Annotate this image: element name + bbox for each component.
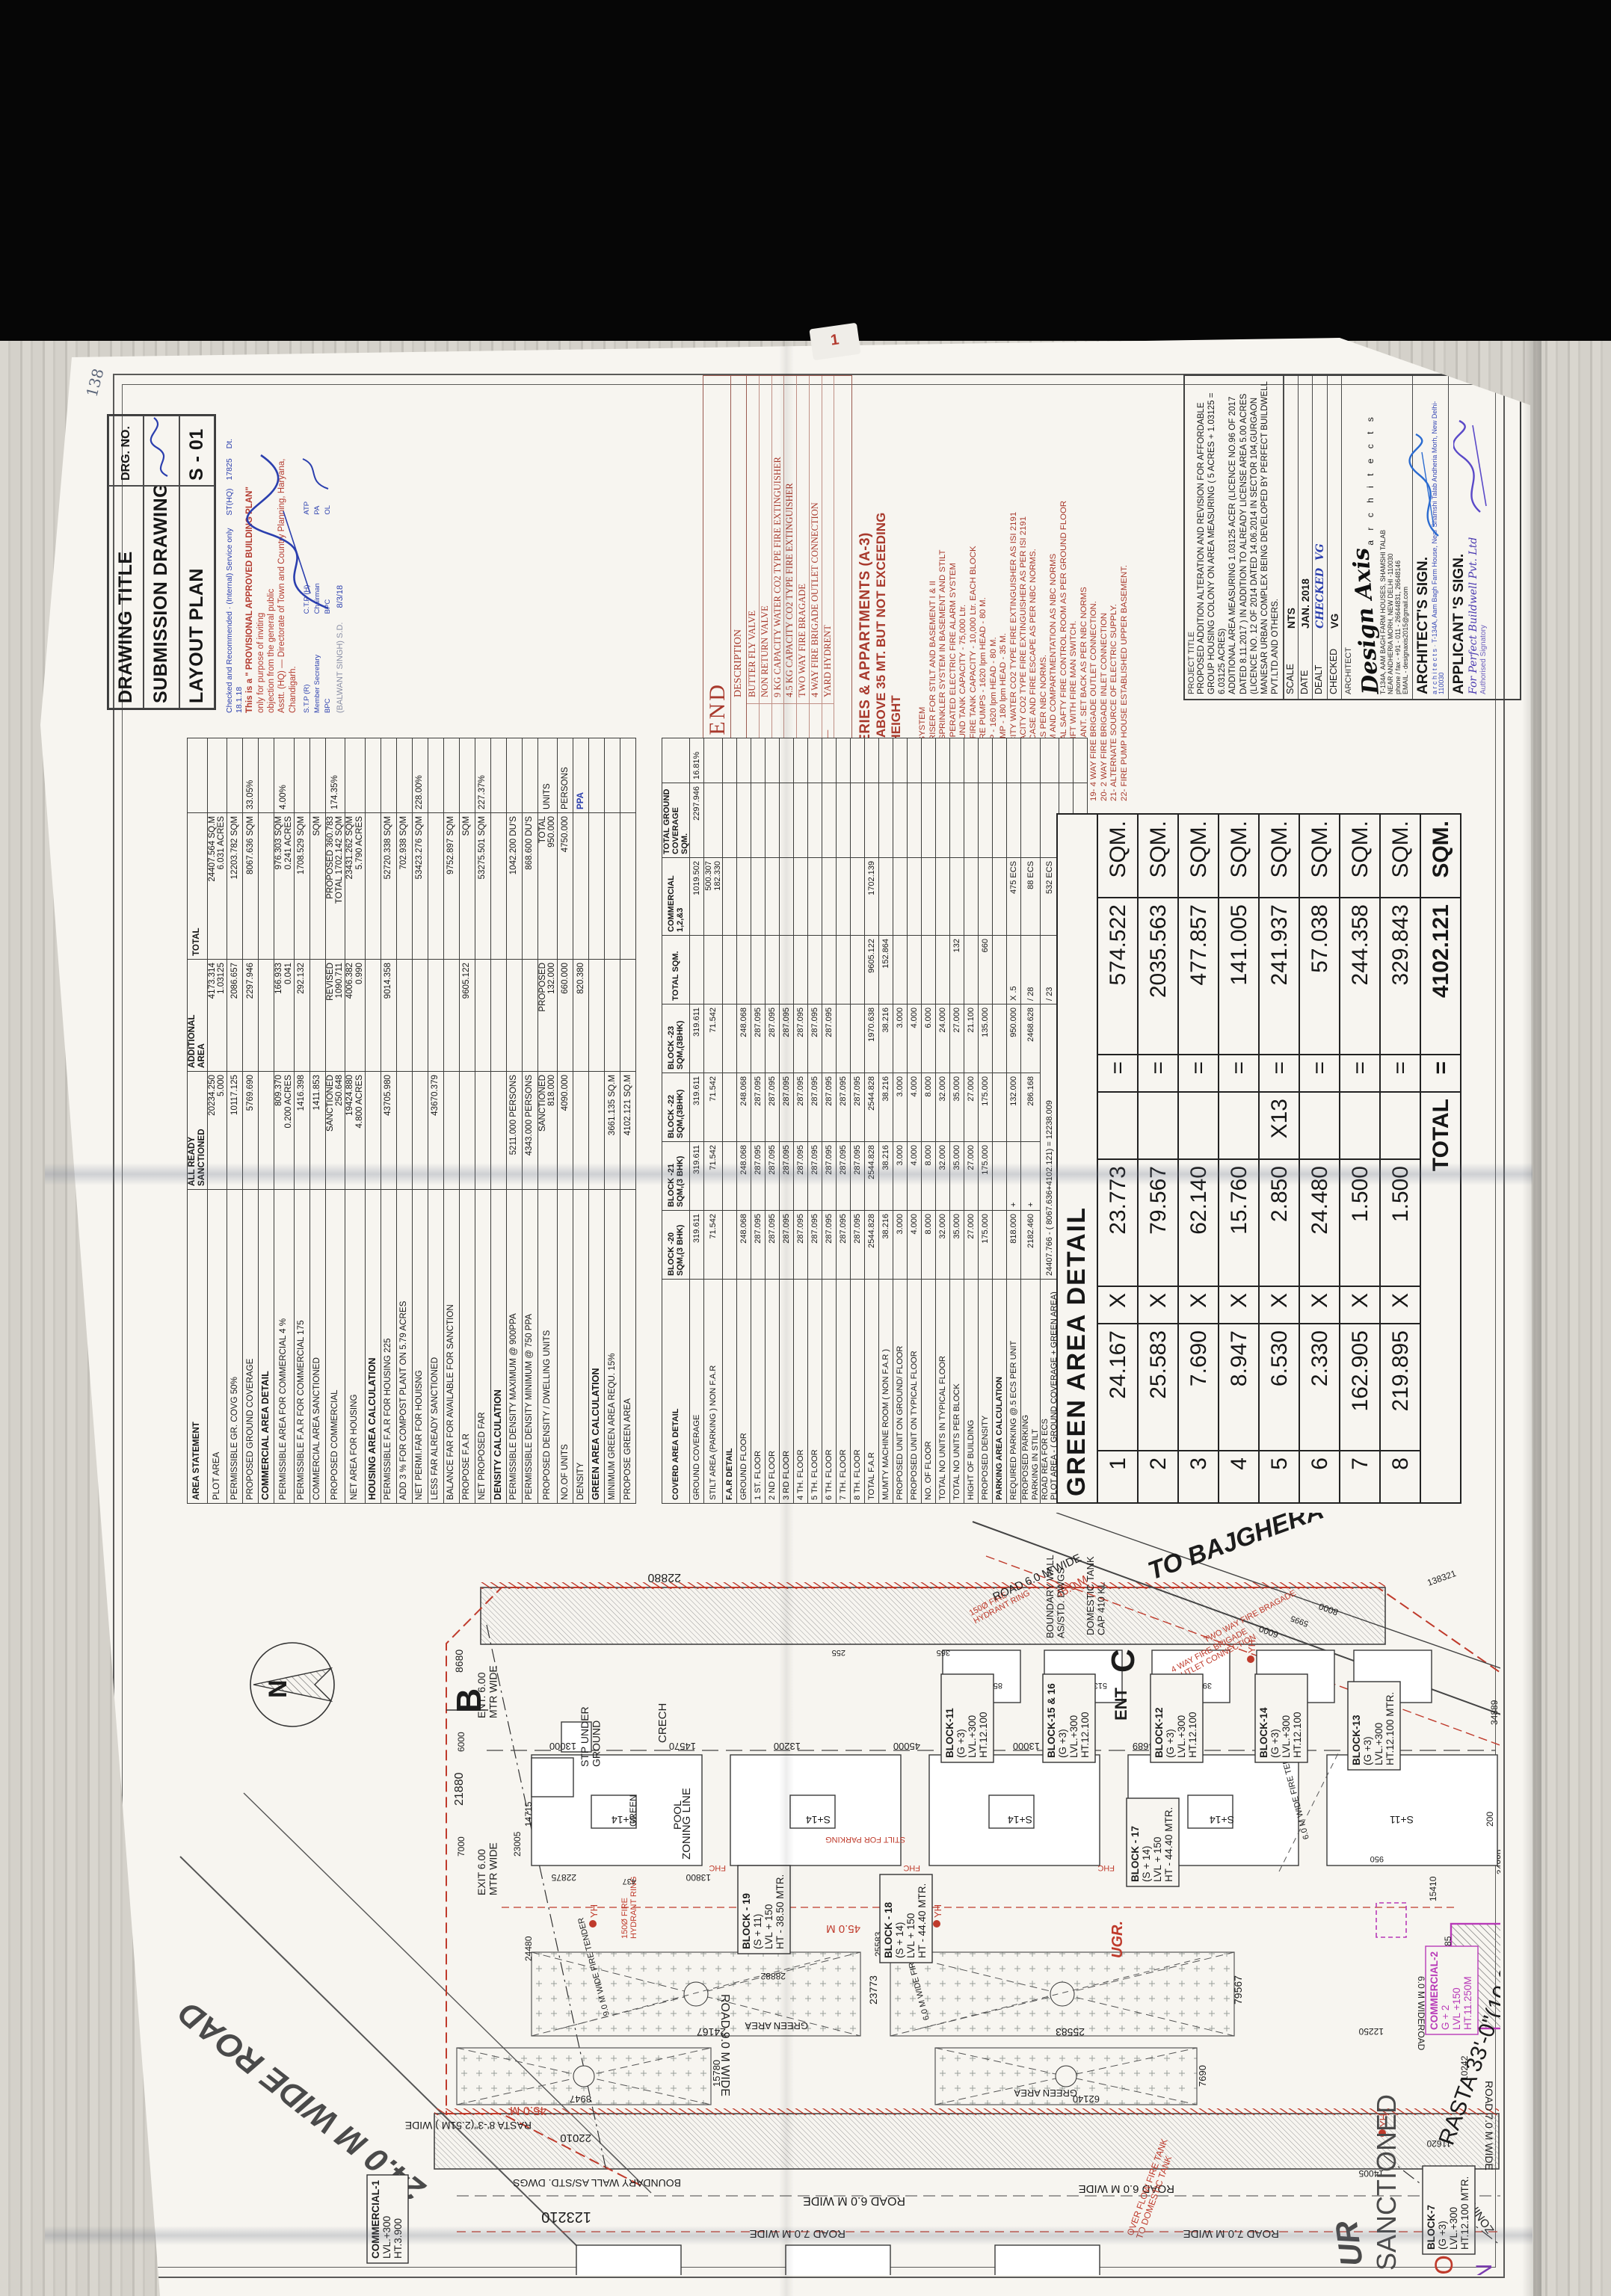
table-row: 3 RD FLOOR287.095287.095287.095287.095 (780, 738, 794, 1504)
notes-heading-3: 45 MT. IN HEIGHT (889, 371, 904, 801)
block-label-line: (G +3) (1165, 1729, 1176, 1758)
plan-label: 22875 (551, 1872, 576, 1883)
legend-description: 9 KG CAPACITY WATER CO2 TYPE FIRE EXTING… (772, 376, 784, 703)
block-label-line: LVL.+300 (967, 1715, 978, 1758)
stamp-checked-note: Checked and Recommended · (Internal) Ser… (225, 417, 244, 713)
green-areas (457, 1952, 1234, 2105)
plan-label: CRECH (656, 1703, 669, 1743)
plan-label: 200 (1485, 1812, 1495, 1827)
plan-label: POOL (671, 1800, 683, 1830)
block-label-line: LVL + 150 (763, 1904, 774, 1949)
note-item: 8- ELECTRIC FIRE PUMPS - 1620 lpm HEAD -… (979, 371, 988, 801)
block-label-line: (G +3) (1269, 1729, 1281, 1758)
plan-label: 45000 (893, 1741, 920, 1752)
plan-label: 79567 (1232, 1975, 1244, 2005)
checked-value: VG (1327, 376, 1341, 633)
note-item: 6- UNDER GROUND TANK CAPACITY - 75,000 L… (958, 371, 968, 801)
stamp-date2: 8/3/18 (336, 585, 345, 608)
table-row: COMMERCIAL AREA SANCTIONED1411.853SQM (309, 738, 325, 1504)
legend-header: SYMBOLS DESCRIPTION (731, 376, 747, 793)
fire-safety-notes: DORMITERIES & APPARTMENTS (A-3) (PART-3)… (857, 371, 1139, 801)
plan-label: 21880 (453, 1772, 466, 1806)
block-label-line: BLOCK-11 (944, 1708, 955, 1758)
checked-label: CHECKED (1327, 633, 1341, 699)
plan-label: CAP 410 KL (1095, 1582, 1106, 1635)
table-row: GROUND FLOOR248.068248.068248.068248.068 (737, 738, 751, 1504)
block-label-box: BLOCK-7(G +3)LVL.+300HT.12.100 MTR. (1423, 2166, 1475, 2254)
stamp-line1: This is a " PROVISIONAL APPROVED BUILDIN… (244, 417, 255, 713)
table-row: LESS FAR ALREADY SANCTIONED43670.379 (428, 738, 443, 1504)
plan-label: 14570 (669, 1741, 696, 1752)
legend-description: TWO WAY FIRE BRAGADE (797, 376, 809, 703)
corner-sticker: 1 (809, 323, 860, 360)
stamp-official: PA (313, 417, 322, 515)
table-row: HIGHT OF BUILDING27.00027.00027.00021.10… (964, 738, 979, 1504)
stamp-official: C.T.P (H) (303, 516, 312, 614)
table-row: COVERD AREA DETAILBLOCK -20 SQM,(3 BHK)B… (662, 738, 690, 1504)
note-item: 21- ALTERNATE SOURCE OF ELECTRIC SUPPLY. (1109, 371, 1119, 801)
table-row: 2 ND FLOOR287.095287.095287.095287.095 (766, 738, 780, 1504)
block-label-line: HT.3.900 (392, 2218, 404, 2259)
note-item: 7- OVER HEAD FIRE TANK CAPACITY - 10,000… (969, 371, 979, 801)
plan-label: FHC (903, 1863, 920, 1872)
note-item: 16- STRUCTURAL SAFTY FIRE CONTROL ROOM A… (1059, 371, 1069, 801)
note-item: 18- YARD HYDRANT. SET BACK AS PER NBC NO… (1079, 371, 1089, 801)
scanned-drawing-sheet: DRAWING TITLE DRG. NO. SUBMISSION DRAWIN… (0, 0, 1611, 2296)
plan-label: GREEN AREA (745, 2020, 808, 2031)
legend-description: YARD HYDRENT (822, 376, 834, 703)
plan-label: 123210 (541, 2209, 591, 2225)
plan-label: STP UNDER (579, 1706, 591, 1767)
block-label-box: BLOCK-12(G +3)LVL.+300HT.12.100 (1151, 1674, 1203, 1762)
block-label-line: BLOCK - 19 (741, 1893, 752, 1949)
plan-label: AS/STD. DWGS (1055, 1567, 1066, 1638)
table-row: 56.530X2.850X13=241.937SQM. (1259, 814, 1299, 1503)
block-label-line: LVL + 150 (1152, 1837, 1163, 1882)
legend-description: NON RETURN VALVE (760, 376, 771, 703)
table-row: HOUSING AREA CALCULATION (365, 738, 381, 1504)
plan-label: 6.0 M WIDEROAD (1416, 1976, 1426, 2051)
drawing-title-row1: SUBMISSION DRAWING (144, 486, 179, 709)
plan-label: SANCTIONED (1371, 2094, 1402, 2271)
plan-label: S+14 (806, 1814, 831, 1826)
table-row: 4 TH. FLOOR287.095287.095287.095287.095 (794, 738, 808, 1504)
stamp-line2: only for purpose of inviting (256, 417, 266, 713)
table-row: TOTAL F.A.R2544.8282544.8282544.8281970.… (865, 738, 879, 1504)
plan-label: GREEN AREA (1014, 2087, 1077, 2099)
block-label-line: BLOCK-7 (1426, 2205, 1437, 2250)
plan-label: 24480 (523, 1936, 534, 1961)
block-label-line: (G +3) (1437, 2221, 1448, 2250)
block-label-line: HT.12.100 (1187, 1712, 1198, 1758)
area-statement-table: AREA STATEMENTALL READY SANCTIONEDADDITI… (187, 738, 636, 1504)
plan-label: S+11 (1390, 1814, 1414, 1826)
dealt-label: DEALT (1312, 633, 1327, 699)
applicant-for: For Perfect Buildwell Pvt. Ltd (1467, 380, 1479, 694)
table-row: STILT AREA (PARKING ) NON F.A.R71.54271.… (704, 738, 723, 1504)
green-area-detail-table: GREEN AREA DETAIL124.167X23.773=574.522S… (1056, 813, 1461, 1504)
block-label-box: COMMERCIAL-1LVL.+300HT.3.900 (367, 2175, 408, 2263)
block-label-box: BLOCK-14(G +3)LVL.+300HT.12.100 (1255, 1674, 1307, 1762)
block-label-line: HT.12.100 MTR. (1459, 2176, 1470, 2250)
drg-no-scribble-cell (144, 416, 179, 486)
plan-label: 34889 (1489, 1700, 1500, 1725)
plan-label: 28882 (760, 1971, 786, 1981)
block-label-box: BLOCK - 17(S + 14)LVL + 150HT - 44.40 MT… (1127, 1798, 1179, 1886)
note-item: 19- 4 WAY FIRE BRIGADE OUTLET CONNECTION… (1089, 371, 1099, 801)
table-row: PERMISSIBLE DENSITY MINIMUM @ 750 PPA434… (522, 738, 537, 1504)
plan-label: N (264, 1679, 292, 1698)
block-label-box: BLOCK - 19(S + 11)LVL + 150HT - 38.50 MT… (738, 1865, 790, 1954)
plan-label: BOUNDARY WALL (1044, 1555, 1056, 1638)
block-label-line: HT.12.100 (1292, 1712, 1303, 1758)
note-item: 20- 2 WAY FIRE BRIGADE INLET CONNECTION (1100, 371, 1109, 801)
plan-label: 255 (832, 1648, 845, 1657)
note-item: 11- 9 KG CAPACITY WATER CO2 TYPE FIRE EX… (1009, 371, 1019, 801)
plan-label: 13000 (1013, 1741, 1040, 1752)
approval-stamp: Checked and Recommended · (Internal) Ser… (225, 417, 388, 713)
drg-no-value: S - 01 (179, 416, 215, 486)
table-row: 5 TH. FLOOR287.095287.095287.095287.095 (808, 738, 822, 1504)
stamp-official: BPC (324, 615, 333, 713)
project-title-label: PROJECT TITLE (1187, 380, 1196, 694)
legend-description: BUTTER FLY VALVE (747, 376, 759, 703)
plan-label: 950 (1370, 1854, 1384, 1863)
plan-label: ROAD 7.0 M WIDE (1483, 2081, 1495, 2170)
plan-label: 150Ø FIRE (620, 1898, 629, 1939)
block-label-line: LVL.+300 (1281, 1715, 1292, 1758)
plan-label: FHC (1097, 1863, 1115, 1872)
handwritten-scribble (145, 416, 178, 481)
table-row: BALANCE FAR FOR AVAILABLE FOR SANCTION97… (443, 738, 459, 1504)
block-label-box: BLOCK-11(G +3)LVL.+300HT.12.100 (941, 1674, 994, 1762)
green-area-1 (532, 1952, 860, 2036)
table-row: 225.583X79.567=2035.563SQM. (1138, 814, 1178, 1503)
plan-label: YH (588, 1904, 600, 1918)
table-row: NO. OF FLOOR8.0008.0008.0006.000 (922, 738, 936, 1504)
plan-label: 8680 (453, 1650, 465, 1673)
plan-label: ROAD 6.0 M WIDE (803, 2194, 905, 2207)
legend-row: △4.5 KG CAPACITY CO2 TYPE FIRE EXTINGUIS… (784, 376, 797, 793)
legend-col-description: DESCRIPTION (731, 376, 746, 703)
block-label-line: (S + 14) (894, 1922, 905, 1958)
plan-label: ROAD 7.0 M WIDE (1183, 2227, 1279, 2240)
plan-label: 24167 (697, 2026, 726, 2038)
applicant-sub: Authorised Signatory (1479, 380, 1488, 694)
block-label-line: HT - 44.40 MTR. (917, 1883, 928, 1958)
block-label-line: BLOCK-13 (1351, 1715, 1362, 1765)
block-label-line: G + 2 (1440, 2005, 1451, 2030)
ugr-structure (1376, 1903, 1406, 1937)
project-title-text: PROPOSED ADDITION ALTERATION AND REVISIO… (1196, 380, 1281, 694)
table-row: GROUND COVERAGE319.611319.611319.611319.… (690, 738, 704, 1504)
table-row: REQUIRED PARKING @.5 ECS PER UNIT818.000… (1007, 738, 1021, 1504)
plan-label: ENT (1112, 1687, 1130, 1721)
plan-label: 45.0 M (826, 1922, 860, 1935)
stamp-line3: objection from the general public (266, 417, 277, 713)
block-label-box: BLOCK-15 & 16(G +3)LVL.+300HT.12.100 (1043, 1674, 1095, 1762)
table-row: PROPOSED GROUND COVERAGE5769.6902297.946… (243, 738, 259, 1504)
stamp-official: OL (324, 417, 333, 515)
table-row: 124.167X23.773=574.522SQM. (1097, 814, 1138, 1503)
table-row: 48.947X15.760=141.005SQM. (1219, 814, 1259, 1503)
legend-title: LEGEND (703, 376, 731, 793)
legend-row: ◎9 KG CAPACITY WATER CO2 TYPE FIRE EXTIN… (772, 376, 785, 793)
plan-label: 6000 (456, 1732, 466, 1752)
stamp-office: Asstt. (HQ) — Directorate of Town and Co… (277, 417, 298, 713)
date-label: DATE (1298, 633, 1312, 699)
architect-sign-section: ARCHITECT'S SIGN. a r c h i t e c t s · … (1413, 376, 1450, 699)
plan-label: ROAD 7.0 M WIDE (750, 2227, 845, 2240)
table-row: DENSITY820.380PPA (573, 738, 589, 1504)
table-row: TOTAL NO UNITS PER BLOCK35.00035.00035.0… (950, 738, 964, 1504)
notes-heading-1: DORMITERIES & APPARTMENTS (A-3) (857, 371, 874, 801)
table-row: PROPOSED DENSITY175.000175.000175.000135… (979, 738, 993, 1504)
plan-label: S+14 (1008, 1814, 1032, 1826)
plan-label: 138321 (1426, 1568, 1458, 1588)
note-item: 10- JOCKEY PUMP - 180 lpm HEAD - 35 M. (999, 371, 1008, 801)
table-row: NET PERMI.FAR FOR HOUISNG53423.276 SQM22… (412, 738, 428, 1504)
block-label-line: LVL.+300 (381, 2216, 392, 2259)
stamp-official: Member Secretary (313, 615, 322, 713)
table-row: 8219.895X1.500=329.843SQM. (1380, 814, 1420, 1503)
legend-description: 4 WAY FIRE BRIGADE OUTLET CONNECTION (810, 376, 822, 703)
stamp-official: ATP (303, 417, 312, 515)
block-label-line: HT.12.100 (978, 1712, 989, 1758)
plan-label: ADDITION (1472, 2264, 1497, 2275)
legend-row: YH ○—YARD HYDRENT (822, 376, 835, 793)
legend-row: ⑂TWO WAY FIRE BRAGADE (797, 376, 810, 793)
note-item: 3- SPRINKLER RISER FOR STILT AND BASEMEN… (928, 371, 938, 801)
block-label-line: LVL.+300 (1176, 1715, 1187, 1758)
plan-label: 365 (937, 1648, 950, 1657)
plan-label: 13800 (686, 1872, 711, 1883)
plan-label: EXIT 6.00 (475, 1849, 487, 1895)
stamp-ref2: 17825 (225, 458, 234, 480)
note-item: 17- FIRE MEN LIFT WITH FIRE MAN SWITCH. (1069, 371, 1079, 801)
note-item: 1- HOSE REEL (908, 371, 918, 801)
note-item: 12- 4.5 KG CAPACITY CO2 TYPE FIRE EXTING… (1019, 371, 1029, 801)
plan-label: 25583 (1056, 2026, 1085, 2038)
block-label-line: (S + 14) (1141, 1846, 1152, 1882)
table-row: 7 TH. FLOOR287.095287.095287.095 (837, 738, 851, 1504)
table-row: MINIMUM GREEN AREA REQU. 15%3661.135 SQ.… (605, 738, 620, 1504)
block-label-line: BLOCK-12 (1153, 1707, 1165, 1758)
table-row: PERMISSIBLE F.A.R FOR COMMERCIAL 1751416… (294, 738, 309, 1504)
plan-label: YH (932, 1904, 943, 1918)
table-row: PERMISSIBLE AREA FOR COMMERCIAL 4 %809.3… (274, 738, 295, 1504)
table-row: PROPOSED DENSITY / DWELLING UNITSSANCTIO… (537, 738, 558, 1504)
table-row: 37.690X62.140=477.857SQM. (1178, 814, 1219, 1503)
table-row: PERMISSIBLE GR. COVG 50%10117.1252086.65… (227, 738, 243, 1504)
stamp-officer-name: (BALWANT SINGH) S.D. 8/3/18 (336, 417, 346, 713)
stamp-official: BPC (324, 516, 333, 614)
table-row: PROPOSE F.A.R9605.122SQM (459, 738, 475, 1504)
table-row: PLOT AREA20234.250 5.0004173.314 1.03125… (207, 738, 227, 1504)
plan-label: UR (1328, 2218, 1370, 2268)
block-label-line: LVL + 150 (905, 1913, 917, 1958)
legend-row: ⑃4 WAY FIRE BRIGADE OUTLET CONNECTION (810, 376, 822, 793)
plan-label: 14715 (523, 1801, 534, 1827)
applicant-sign-section: APPLICANT 'S SIGN. For Perfect Buildwell… (1449, 376, 1490, 699)
block-label-box: COMMERCIAL-2G + 2LVL +150HT.11.250M (1426, 1946, 1478, 2034)
plan-label: 12250 (1358, 2026, 1384, 2037)
table-row: TOTAL=4102.121SQM. (1420, 814, 1461, 1503)
plan-label: UGR. (1109, 1921, 1126, 1958)
table-row: NET PROPOSED FAR53275.501 SQM227.37% (475, 738, 490, 1504)
plan-label: 22880 (647, 1571, 681, 1584)
table-row: 62.330X24.480=57.038SQM. (1299, 814, 1340, 1503)
table-row: PARKING AREA CALCULATION (993, 738, 1007, 1504)
road-rasta-83-band (434, 2108, 1499, 2169)
stamp-ref: ST(HQ) (225, 488, 234, 515)
title-block: PROJECT TITLE PROPOSED ADDITION ALTERATI… (1183, 374, 1521, 700)
table-row: 6 TH. FLOOR287.095287.095287.095287.095 (822, 738, 837, 1504)
plan-label: 437 (623, 1877, 636, 1886)
notes-list: 1- HOSE REEL2- WET RISER SYSTEM3- SPRINK… (908, 371, 1130, 801)
scale-label: SCALE (1284, 633, 1298, 699)
note-item: 5- MANUALLY OPERATED ELECTRIC FIRE ALARM… (949, 371, 958, 801)
block-label-line: LVL.+300 (1448, 2207, 1459, 2250)
plan-label: B (449, 1688, 488, 1713)
drawing-sheet-paper: DRAWING TITLE DRG. NO. SUBMISSION DRAWIN… (37, 336, 1536, 2296)
block-label-line: HT.12.100 (1079, 1712, 1091, 1758)
plan-label: TO BAJGHERA (1145, 1513, 1328, 1586)
plan-label: 62140 (1073, 2093, 1100, 2105)
table-row: NET AREA FOR HOUSING19424.880 4.800 ACRE… (345, 738, 366, 1504)
plan-label: 45.0 M (510, 2104, 546, 2117)
table-row: COMMERCIAL AREA DETAIL (259, 738, 274, 1504)
plan-label: 13200 (774, 1741, 801, 1752)
block-label-line: HT.11.250M (1462, 1976, 1473, 2030)
table-row: PROPOSE GREEN AREA4102.121 SQ.M (620, 738, 636, 1504)
table-row: PROPOSED PARKING PARKING IN STILT2182.46… (1021, 738, 1040, 1504)
dealt-value: CHECKED VG (1312, 376, 1327, 633)
legend-row: ⊿⃒NON RETURN VALVE (760, 376, 772, 793)
table-row: PROPOSED UNIT ON TYPICAL FLOOR4.0004.000… (908, 738, 922, 1504)
table-row: MUMTY MACHINE ROOM ( NON F.A.R )38.21638… (879, 738, 893, 1504)
block-label-line: LVL +150 (1451, 1987, 1462, 2030)
note-item: 14- SET BACK AS PER NBC NORMS. (1039, 371, 1049, 801)
table-row: F.A.R DETAIL (723, 738, 737, 1504)
block-label-line: HT.12.100 MTR. (1384, 1692, 1396, 1765)
block-label-line: BLOCK - 18 (883, 1902, 894, 1959)
table-row: TOTAL NO UNITS IN TYPICAL FLOOR32.00032.… (936, 738, 950, 1504)
note-item: 22- FIRE PUMP HOUSE ESTABLISHED UPPER BA… (1120, 371, 1130, 801)
table-row: PERMISSIBLE F.A.R FOR HOUSING 22543705.9… (381, 738, 396, 1504)
plan-label: GROUND (590, 1721, 602, 1767)
notes-heading-2: (PART-3) - ABOVE 35 MT. BUT NOT EXCEEDIN… (874, 371, 889, 801)
drawing-title-label: DRAWING TITLE (108, 486, 144, 709)
plan-label: 34889 (1495, 1849, 1500, 1874)
block-label-line: (G +3) (1057, 1729, 1068, 1758)
note-item: 9- DIESEL PUMP - 1620 lpm HEAD - 80 M. (989, 371, 999, 801)
table-row: 7162.905X1.500=244.358SQM. (1340, 814, 1380, 1503)
table-row: PROPOSED UNIT ON GROUND/ FLOOR3.0003.000… (893, 738, 908, 1504)
plan-label: MTR WIDE (487, 1665, 499, 1718)
table-row: ADD 3 % FOR COMPOST PLANT ON 5.79 ACRES7… (396, 738, 412, 1504)
plan-label: C (1105, 1649, 1142, 1673)
plan-label: STILT FOR PARKING (825, 1835, 905, 1844)
block-label-line: (S + 11) (752, 1914, 763, 1949)
architect-section: ARCHITECT Design Axis a r c h i t e c t … (1341, 376, 1412, 699)
meta-grid: SCALENTS DATEJAN. 2018 DEALTCHECKED VG C… (1284, 376, 1341, 699)
legend-row: ⋈BUTTER FLY VALVE (747, 376, 760, 793)
plan-label: 15410 (1428, 1876, 1438, 1901)
plan-label: FHC (709, 1863, 726, 1872)
block-label-box: BLOCK-13(G +3)LVL.+300HT.12.100 MTR. (1348, 1682, 1400, 1770)
table-row: 1 ST. FLOOR287.095287.095287.095287.095 (751, 738, 766, 1504)
block-label-box: BLOCK - 18(S + 14)LVL + 150HT - 44.40 MT… (880, 1874, 932, 1963)
architect-address: T-134A, AAM BAGH FARM HOUSES, SHAMSHI TA… (1379, 380, 1409, 694)
plan-label: S+14 (1210, 1814, 1234, 1826)
architect-stamp: a r c h i t e c t s · T-134A, Aam Bagh F… (1432, 380, 1447, 694)
block-label-line: BLOCK - 17 (1130, 1826, 1141, 1882)
table-row: NO.OF UNITS4090.000660.0004750.000PERSON… (558, 738, 573, 1504)
legend-description: 4.5 KG CAPACITY CO2 TYPE FIRE EXTINGUISH… (784, 376, 796, 703)
block-label-line: LVL.+300 (1373, 1723, 1384, 1765)
note-item: 13- FIRE STAIRCASE AND FIRE ESCAPE AS PE… (1029, 371, 1038, 801)
legend-panel: LEGEND SYMBOLS DESCRIPTION ⋈BUTTER FLY V… (703, 375, 852, 794)
block-label-line: BLOCK-14 (1258, 1707, 1269, 1758)
drg-no-label: DRG. NO. (108, 416, 144, 486)
edge-buildings-cut (576, 2245, 1100, 2275)
legend-rows: ⋈BUTTER FLY VALVE⊿⃒NON RETURN VALVE◎9 KG… (747, 376, 834, 793)
north-arrow (250, 1643, 334, 1726)
table-row: 8 TH. FLOOR287.095287.095287.095 (851, 738, 865, 1504)
scale-value: NTS (1284, 376, 1298, 633)
block-label-line: HT - 38.50 MTR. (774, 1874, 786, 1949)
plan-label: DOMESTIC TANK (1085, 1556, 1096, 1635)
plan-label: 8947 (570, 2093, 591, 2105)
plan-label: 23005 (512, 1831, 523, 1857)
plan-label: 13000 (549, 1741, 576, 1752)
date-value: JAN. 2018 (1298, 376, 1312, 633)
plan-label: MTR WIDE (487, 1842, 499, 1895)
table-row: DENSITY CALCULATION (490, 738, 506, 1504)
plan-label: 7000 (456, 1836, 466, 1857)
stamp-officials-grid: S.T.P (R)C.T.P (H)ATPMember SecretaryCha… (303, 417, 333, 713)
block-label-line: COMMERCIAL-1 (370, 2180, 381, 2259)
table-row: PROPOSED COMMERCIALSANCTIONED 250.648REV… (325, 738, 345, 1504)
block-label-line: HT - 44.40 MTR. (1163, 1807, 1174, 1882)
drawing-title-block: DRAWING TITLE DRG. NO. SUBMISSION DRAWIN… (107, 414, 216, 710)
note-item: 15- P.A. SYSTEM AND COMPARTMENTATION AS … (1049, 371, 1059, 801)
stamp-official: S.T.P (R) (303, 615, 312, 713)
covered-area-table: COVERD AREA DETAILBLOCK -20 SQM,(3 BHK)B… (662, 738, 1088, 1504)
table-row: GREEN AREA DETAIL (1057, 814, 1097, 1503)
block-label-line: (G +3) (955, 1729, 967, 1758)
note-item: 2- WET RISER SYSTEM (918, 371, 928, 801)
table-row: AREA STATEMENTALL READY SANCTIONEDADDITI… (188, 738, 208, 1504)
table-row: PERMISSIBLE DENSITY MAXIMUM @ 900PPA5211… (506, 738, 522, 1504)
stamp-official: Chairman (313, 516, 322, 614)
architect-label: ARCHITECT (1344, 380, 1353, 694)
drawing-title-row2: LAYOUT PLAN (179, 486, 215, 709)
block-label-line: COMMERCIAL-2 (1429, 1951, 1440, 2030)
block-label-line: LVL.+300 (1068, 1715, 1079, 1758)
site-plan-drawing: 24.0 M WIDE ROAD123210BOUNDARY WALL AS/S… (113, 1513, 1500, 2275)
plan-label: BOUNDARY WALL AS/STD. DWGS (513, 2177, 681, 2189)
plan-label: 15780 (711, 2060, 722, 2087)
plan-label: 7690 (1197, 2065, 1208, 2087)
plan-label: S+14 (612, 1814, 636, 1826)
block-label-line: BLOCK-15 & 16 (1046, 1683, 1057, 1758)
applicant-sign-label: APPLICANT 'S SIGN. (1451, 554, 1467, 694)
plan-label: RASTA 8'-3"(2.51M ) WIDE (405, 2120, 532, 2132)
table-row: GREEN AREA CALCULATION (589, 738, 605, 1504)
block-label-line: (G +3) (1362, 1736, 1373, 1765)
